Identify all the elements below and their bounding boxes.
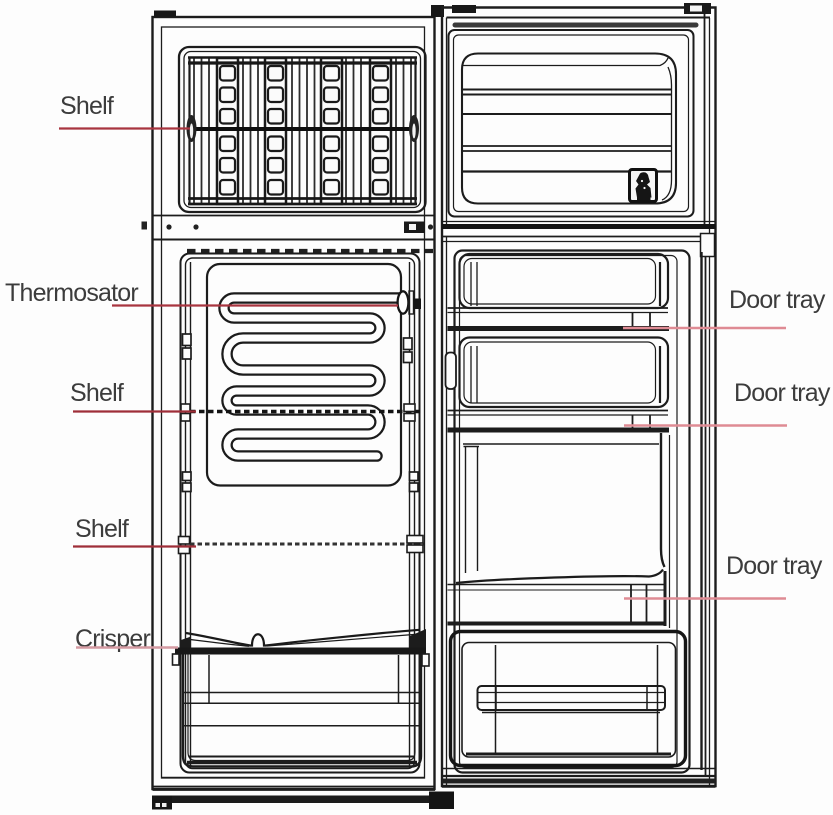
svg-text:Crisper: Crisper (75, 625, 150, 653)
svg-text:Shelf: Shelf (60, 92, 114, 120)
svg-text:Door tray: Door tray (726, 552, 823, 580)
svg-text:Door tray: Door tray (729, 286, 826, 314)
svg-text:Door tray: Door tray (734, 379, 831, 407)
svg-text:Shelf: Shelf (70, 379, 124, 407)
svg-text:Shelf: Shelf (75, 515, 129, 543)
svg-text:Thermosator: Thermosator (5, 279, 138, 307)
